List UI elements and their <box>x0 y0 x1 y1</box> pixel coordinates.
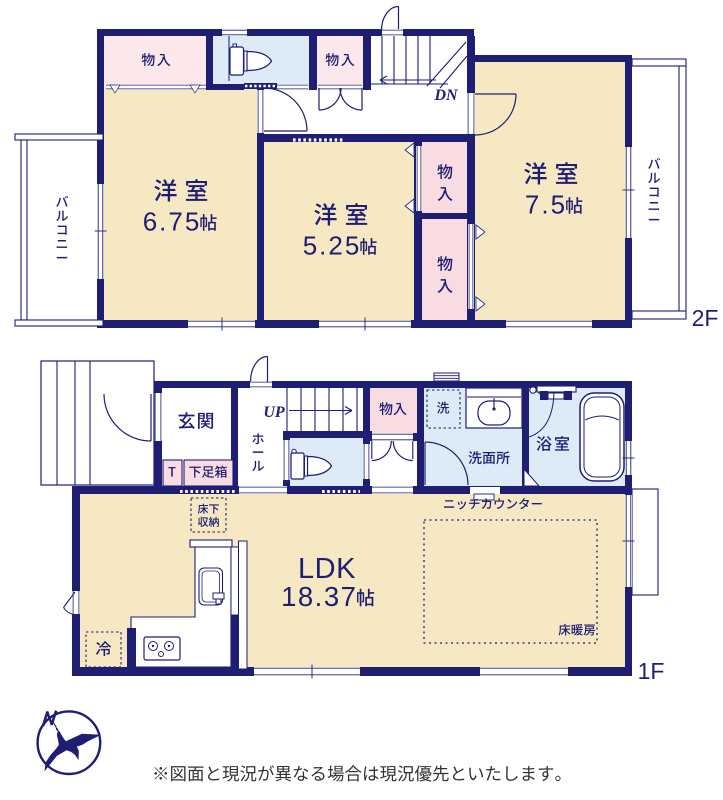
svg-text:7.5: 7.5 <box>525 189 567 219</box>
svg-text:UP: UP <box>263 404 285 421</box>
svg-text:5.25: 5.25 <box>303 230 362 260</box>
svg-text:DN: DN <box>433 87 459 104</box>
svg-text:1F: 1F <box>638 658 665 684</box>
svg-text:6.75: 6.75 <box>143 206 202 236</box>
svg-text:2F: 2F <box>692 305 719 331</box>
svg-text:18.37: 18.37 <box>281 581 357 612</box>
